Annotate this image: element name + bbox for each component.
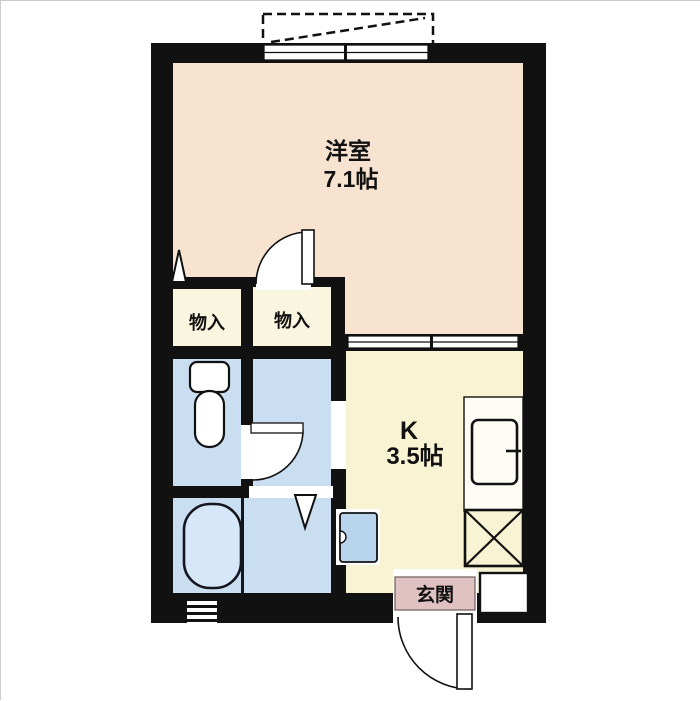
western-room-size: 7.1帖 bbox=[324, 166, 379, 192]
closet-left-label: 物入 bbox=[189, 312, 225, 333]
entrance-label: 玄関 bbox=[416, 583, 454, 606]
bath-partition bbox=[241, 498, 244, 593]
closet-right-label: 物入 bbox=[274, 310, 310, 331]
floor-plan-drawing: 洋室 7.1帖 物入 物入 K 3.5帖 玄関 bbox=[1, 1, 700, 701]
kitchen-label: K bbox=[400, 417, 418, 445]
bath-doorway bbox=[249, 486, 333, 498]
kitchen-size: 3.5帖 bbox=[386, 443, 443, 470]
balcony-outline bbox=[263, 14, 433, 45]
washroom-doorway bbox=[331, 401, 346, 469]
floor-plan: 洋室 7.1帖 物入 物入 K 3.5帖 玄関 bbox=[0, 0, 700, 700]
kitchen-sink-counter-icon bbox=[464, 397, 523, 511]
toilet-icon bbox=[190, 362, 229, 447]
shoe-cabinet bbox=[480, 573, 528, 613]
window bbox=[264, 43, 428, 62]
bathtub-icon bbox=[184, 504, 241, 588]
western-room-label: 洋室 bbox=[325, 138, 371, 164]
washing-machine-pan-icon bbox=[336, 509, 380, 565]
sliding-door bbox=[348, 334, 518, 350]
refrigerator-space-icon bbox=[465, 510, 523, 566]
